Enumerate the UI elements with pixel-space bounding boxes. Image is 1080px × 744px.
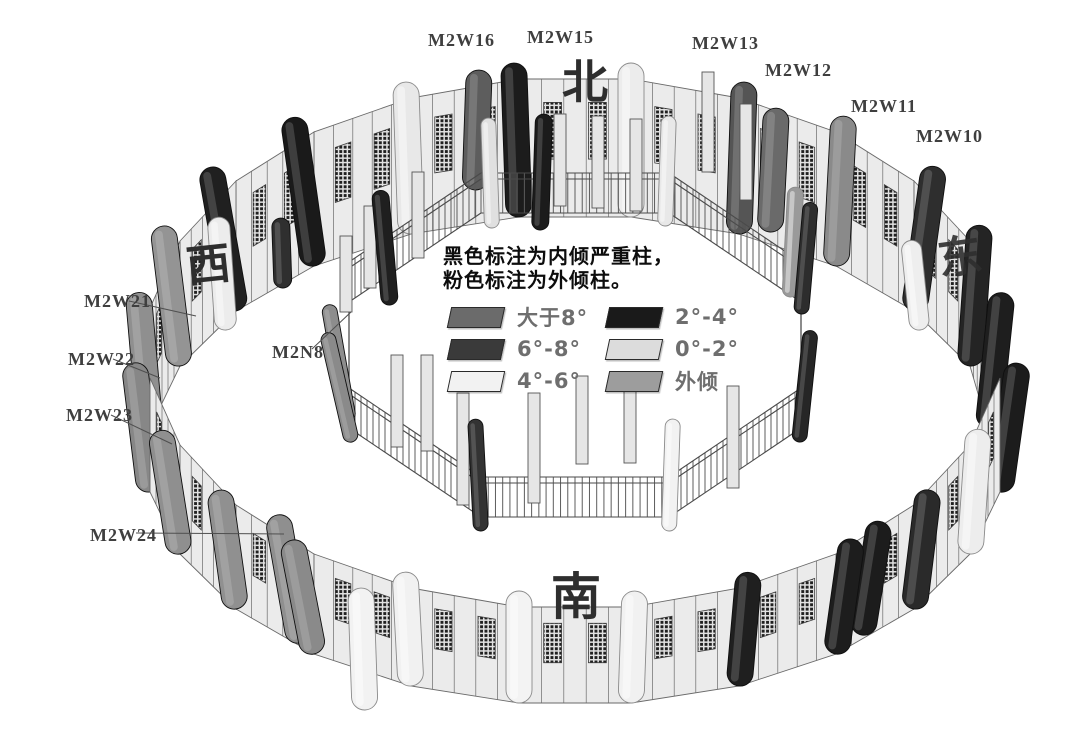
column	[618, 591, 648, 704]
legend-swatch	[605, 371, 663, 392]
legend-item: 2°-4°	[601, 305, 759, 329]
lattice-window	[335, 142, 351, 203]
legend-note-line2: 粉色标注为外倾柱。	[443, 268, 763, 292]
legend-swatch	[447, 371, 505, 392]
baluster	[528, 393, 540, 503]
lattice-window	[853, 165, 865, 227]
column	[658, 116, 677, 226]
legend-item: 6°-8°	[443, 337, 601, 361]
baluster	[592, 116, 604, 208]
direction-south: 南	[551, 568, 601, 626]
lattice-window	[374, 592, 390, 638]
lattice-window	[588, 623, 606, 662]
legend-swatch	[605, 339, 663, 360]
legend-item: 大于8°	[443, 302, 601, 332]
wall-segment	[411, 588, 519, 703]
fence-segment	[481, 477, 669, 517]
baluster	[340, 236, 352, 312]
baluster	[412, 172, 424, 258]
column	[481, 118, 500, 228]
legend-label: 6°-8°	[517, 337, 581, 361]
baluster	[727, 386, 739, 488]
column	[501, 63, 532, 218]
column	[468, 419, 489, 532]
lattice-window	[192, 477, 201, 530]
column	[957, 428, 992, 555]
baluster	[554, 114, 566, 206]
lattice-window	[435, 609, 452, 652]
outer-wall-near	[148, 378, 1000, 710]
lattice-window	[698, 609, 715, 652]
legend-item: 外倾	[601, 366, 759, 396]
column	[348, 588, 378, 711]
legend-row: 4°-6°外倾	[443, 365, 763, 397]
legend-label: 2°-4°	[675, 305, 739, 329]
legend-row: 6°-8°0°-2°	[443, 333, 763, 365]
lattice-window	[478, 616, 495, 659]
baluster	[457, 393, 469, 505]
lattice-window	[253, 185, 265, 246]
baluster	[740, 104, 752, 200]
column	[662, 419, 681, 531]
direction-north: 北	[562, 55, 608, 109]
legend-item: 0°-2°	[601, 337, 759, 361]
baluster	[702, 72, 714, 172]
column	[532, 114, 553, 231]
legend-items: 大于8°2°-4°6°-8°0°-2°4°-6°外倾	[443, 301, 763, 397]
lattice-window	[655, 616, 672, 659]
legend-swatch	[447, 307, 505, 328]
legend-row: 大于8°2°-4°	[443, 301, 763, 333]
lattice-window	[949, 477, 958, 530]
legend-label: 外倾	[675, 366, 719, 396]
baluster	[421, 355, 433, 451]
baluster	[391, 355, 403, 447]
direction-west: 西	[184, 238, 233, 293]
lattice-window	[374, 129, 390, 190]
tilt-survey-diagram: 北 西 东 南 M2W16M2W15M2W13M2W12M2W11M2W10M2…	[0, 0, 1080, 744]
column	[506, 591, 532, 703]
lattice-window	[253, 533, 265, 583]
legend-label: 0°-2°	[675, 337, 739, 361]
legend-note-line1: 黑色标注为内倾严重柱，	[443, 244, 763, 268]
tilt-legend: 黑色标注为内倾严重柱， 粉色标注为外倾柱。 大于8°2°-4°6°-8°0°-2…	[443, 244, 763, 397]
legend-label: 大于8°	[517, 302, 588, 332]
lattice-window	[884, 185, 896, 246]
lattice-window	[760, 592, 776, 638]
legend-swatch	[447, 339, 505, 360]
lattice-window	[544, 623, 562, 662]
column	[392, 571, 424, 686]
column	[272, 218, 292, 289]
baluster	[630, 119, 642, 211]
column	[792, 330, 819, 443]
legend-item: 4°-6°	[443, 369, 601, 393]
lattice-window	[435, 114, 452, 173]
legend-swatch	[605, 307, 663, 328]
legend-label: 4°-6°	[517, 369, 581, 393]
lattice-window	[799, 578, 815, 624]
direction-east: 东	[935, 229, 986, 286]
